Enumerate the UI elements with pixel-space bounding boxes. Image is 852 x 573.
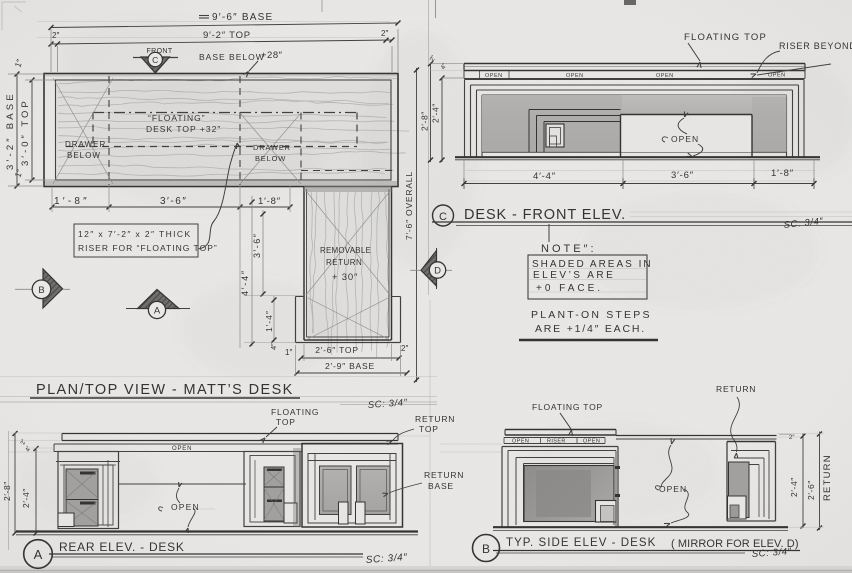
svg-text:BASE: BASE [428, 481, 454, 491]
svg-text:2′-6″ TOP: 2′-6″ TOP [315, 345, 359, 355]
svg-text:+28″: +28″ [261, 50, 283, 61]
svg-text:1′-8″: 1′-8″ [771, 168, 794, 179]
svg-text:3′-2″ BASE: 3′-2″ BASE [5, 91, 16, 170]
svg-text:DRAWER: DRAWER [253, 143, 291, 152]
svg-text:TYP. SIDE ELEV - DESK: TYP. SIDE ELEV - DESK [506, 537, 656, 549]
svg-text:3′-6″: 3′-6″ [252, 233, 262, 258]
svg-text:4″: 4″ [269, 343, 278, 350]
svg-text:BASE BELOW: BASE BELOW [199, 52, 265, 62]
svg-text:DESK TOP +32″: DESK TOP +32″ [146, 124, 221, 134]
svg-text:2′-8″: 2′-8″ [420, 111, 430, 131]
svg-text:2″: 2″ [401, 344, 408, 353]
svg-text:NOTE″:: NOTE″: [541, 243, 597, 255]
svg-text:2′-4″: 2′-4″ [789, 477, 799, 497]
svg-text:A: A [34, 547, 43, 562]
svg-text:OPEN: OPEN [659, 484, 687, 494]
svg-text:OPEN: OPEN [485, 73, 503, 79]
svg-text:B: B [482, 542, 490, 556]
svg-text:RETURN: RETURN [326, 258, 362, 267]
svg-text:RETURN: RETURN [716, 384, 756, 394]
svg-text:FLOATING TOP: FLOATING TOP [684, 32, 767, 43]
svg-text:DESK - FRONT ELEV.: DESK - FRONT ELEV. [464, 207, 626, 223]
svg-text:3′-0″ TOP: 3′-0″ TOP [20, 98, 31, 166]
svg-text:RETURN: RETURN [822, 454, 833, 501]
svg-text:ELEV’S ARE: ELEV’S ARE [533, 270, 615, 281]
svg-text:RISER FOR “FLOATING TOP”: RISER FOR “FLOATING TOP” [78, 243, 218, 253]
svg-text:2′-6″: 2′-6″ [806, 480, 816, 500]
svg-text:TOP: TOP [276, 417, 296, 427]
svg-text:2′-4″: 2′-4″ [21, 488, 31, 508]
svg-text:OPEN: OPEN [566, 73, 584, 79]
svg-text:OPEN: OPEN [671, 134, 699, 144]
svg-text:C: C [439, 211, 447, 223]
svg-text:4′-4″: 4′-4″ [240, 269, 250, 296]
svg-text:D: D [434, 266, 441, 277]
svg-text:12″ x 7′-2″ x 2″ THICK: 12″ x 7′-2″ x 2″ THICK [78, 229, 192, 239]
svg-text:1″: 1″ [285, 348, 292, 357]
svg-text:2′-9″ BASE: 2′-9″ BASE [325, 361, 375, 371]
svg-text:REAR ELEV. - DESK: REAR ELEV. - DESK [59, 540, 185, 554]
svg-text:A: A [154, 306, 161, 317]
svg-text:BELOW: BELOW [67, 151, 101, 160]
svg-text:2′-8″: 2′-8″ [2, 481, 12, 501]
svg-text:OPEN: OPEN [656, 73, 674, 79]
svg-text:2″: 2″ [52, 31, 59, 40]
svg-text:2″: 2″ [381, 29, 388, 38]
svg-text:9′-6″ BASE: 9′-6″ BASE [212, 12, 273, 23]
svg-text:PLAN/TOP VIEW - MATT’S DESK: PLAN/TOP VIEW - MATT’S DESK [36, 382, 294, 398]
svg-text:7′-6″ OVERALL: 7′-6″ OVERALL [404, 171, 414, 240]
svg-text:RISER: RISER [547, 439, 566, 445]
svg-text:+0 FACE.: +0 FACE. [536, 283, 603, 294]
svg-text:FRONT: FRONT [146, 48, 172, 55]
svg-text:ARE +1/4″ EACH.: ARE +1/4″ EACH. [535, 323, 646, 335]
svg-text:+ 30″: + 30″ [332, 272, 358, 283]
svg-text:OPEN: OPEN [172, 446, 192, 452]
svg-text:C: C [152, 55, 158, 65]
svg-text:RETURN: RETURN [415, 414, 455, 424]
svg-text:DRAWER: DRAWER [65, 140, 106, 149]
svg-text:3′-6″: 3′-6″ [671, 170, 694, 181]
svg-text:OPEN: OPEN [512, 439, 529, 445]
svg-text:PLANT-ON STEPS: PLANT-ON STEPS [531, 309, 652, 321]
svg-text:OPEN: OPEN [171, 502, 200, 512]
svg-text:1′-4″: 1′-4″ [264, 310, 274, 332]
svg-text:FLOATING TOP: FLOATING TOP [532, 402, 603, 412]
svg-text:2′-4″: 2′-4″ [431, 103, 441, 123]
svg-text:OPEN: OPEN [583, 439, 600, 445]
svg-text:TOP: TOP [419, 424, 439, 434]
svg-text:B: B [38, 285, 44, 296]
svg-text:“FLOATING”: “FLOATING” [148, 113, 206, 123]
svg-text:4′-4″: 4′-4″ [533, 171, 556, 182]
svg-text:3′-6″: 3′-6″ [160, 196, 187, 207]
svg-text:9′-2″ TOP: 9′-2″ TOP [203, 30, 251, 41]
svg-text:SHADED AREAS IN: SHADED AREAS IN [532, 259, 653, 270]
svg-text:RISER BEYOND: RISER BEYOND [779, 41, 852, 51]
svg-text:REMOVABLE: REMOVABLE [320, 246, 371, 255]
svg-text:RETURN: RETURN [424, 470, 464, 480]
svg-text:2″: 2″ [789, 435, 795, 441]
svg-text:1′-8″: 1′-8″ [54, 196, 90, 207]
svg-text:FLOATING: FLOATING [271, 407, 319, 417]
svg-text:1′-8″: 1′-8″ [258, 196, 281, 207]
svg-text:BELOW: BELOW [255, 154, 286, 163]
